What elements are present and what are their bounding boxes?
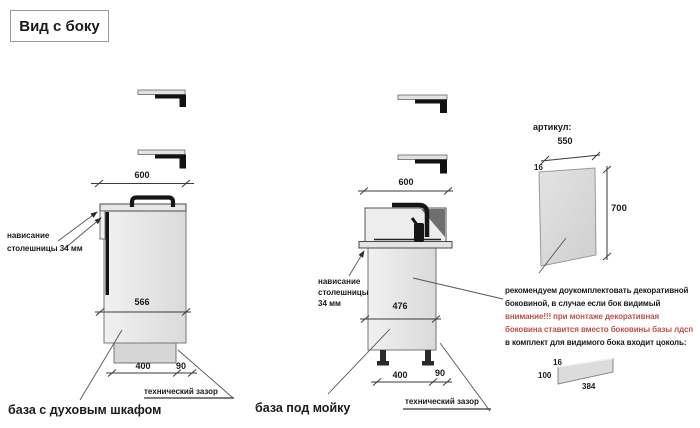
wall-bracket-icon	[398, 155, 447, 174]
blueprint-canvas: Вид с боку 600 нависание столешницы 34 м…	[0, 0, 700, 428]
wall-bracket-icon	[398, 95, 447, 113]
dim-inner-depth-left: 566	[134, 297, 149, 307]
adjustable-leg-icon	[377, 350, 434, 366]
drawing-linework	[0, 0, 700, 428]
dim-panel-thickness: 16	[534, 163, 543, 172]
wall-bracket-icon	[138, 90, 186, 107]
tech-gap-label-left: технический зазор	[144, 387, 218, 396]
overhang-label-left: нависание столешницы 34 мм	[7, 229, 83, 255]
plinth-panel-drawing	[558, 359, 613, 385]
dim-gap-sink: 90	[435, 368, 445, 378]
recommendation-note: рекомендуем доукомплектовать декоративно…	[505, 284, 693, 349]
caption-oven-base: база с духовым шкафом	[8, 403, 161, 417]
note-line-warning: боковина ставится вместо боковины базы л…	[505, 323, 693, 336]
decorative-side-panel-drawing	[539, 168, 596, 273]
article-heading: артикул:	[533, 122, 571, 132]
dim-inner-depth-sink: 476	[392, 301, 407, 311]
tech-gap-label-sink: технический зазор	[405, 397, 479, 406]
caption-sink-base: база под мойку	[255, 401, 350, 415]
dim-plinth-depth-left: 400	[135, 361, 150, 371]
dim-plinth-depth-sink: 400	[392, 370, 407, 380]
note-line: в комплект для видимого бока входит цоко…	[505, 336, 693, 349]
overhang-label-sink: нависание столешницы 34 мм	[318, 276, 369, 309]
page-title: Вид с боку	[19, 18, 100, 35]
dim-top-width-sink: 600	[398, 177, 413, 187]
wall-bracket-icon	[138, 150, 186, 169]
dim-plinth-length: 384	[582, 382, 595, 391]
note-line: боковиной, в случае если бок видимый	[505, 297, 693, 310]
dim-gap-left: 90	[176, 361, 186, 371]
dim-top-width-left: 600	[134, 170, 149, 180]
dim-plinth-height: 100	[538, 371, 551, 380]
sink-base-cabinet-drawing	[359, 205, 452, 366]
note-line-warning: внимание!!! при монтаже декоративная	[505, 310, 693, 323]
dim-panel-width: 550	[557, 136, 572, 146]
note-line: рекомендуем доукомплектовать декоративно…	[505, 284, 693, 297]
dim-panel-height: 700	[611, 203, 627, 214]
dim-plinth-thickness: 16	[553, 358, 562, 367]
view-title-box: Вид с боку	[10, 10, 109, 42]
oven-base-cabinet-drawing	[100, 198, 186, 364]
